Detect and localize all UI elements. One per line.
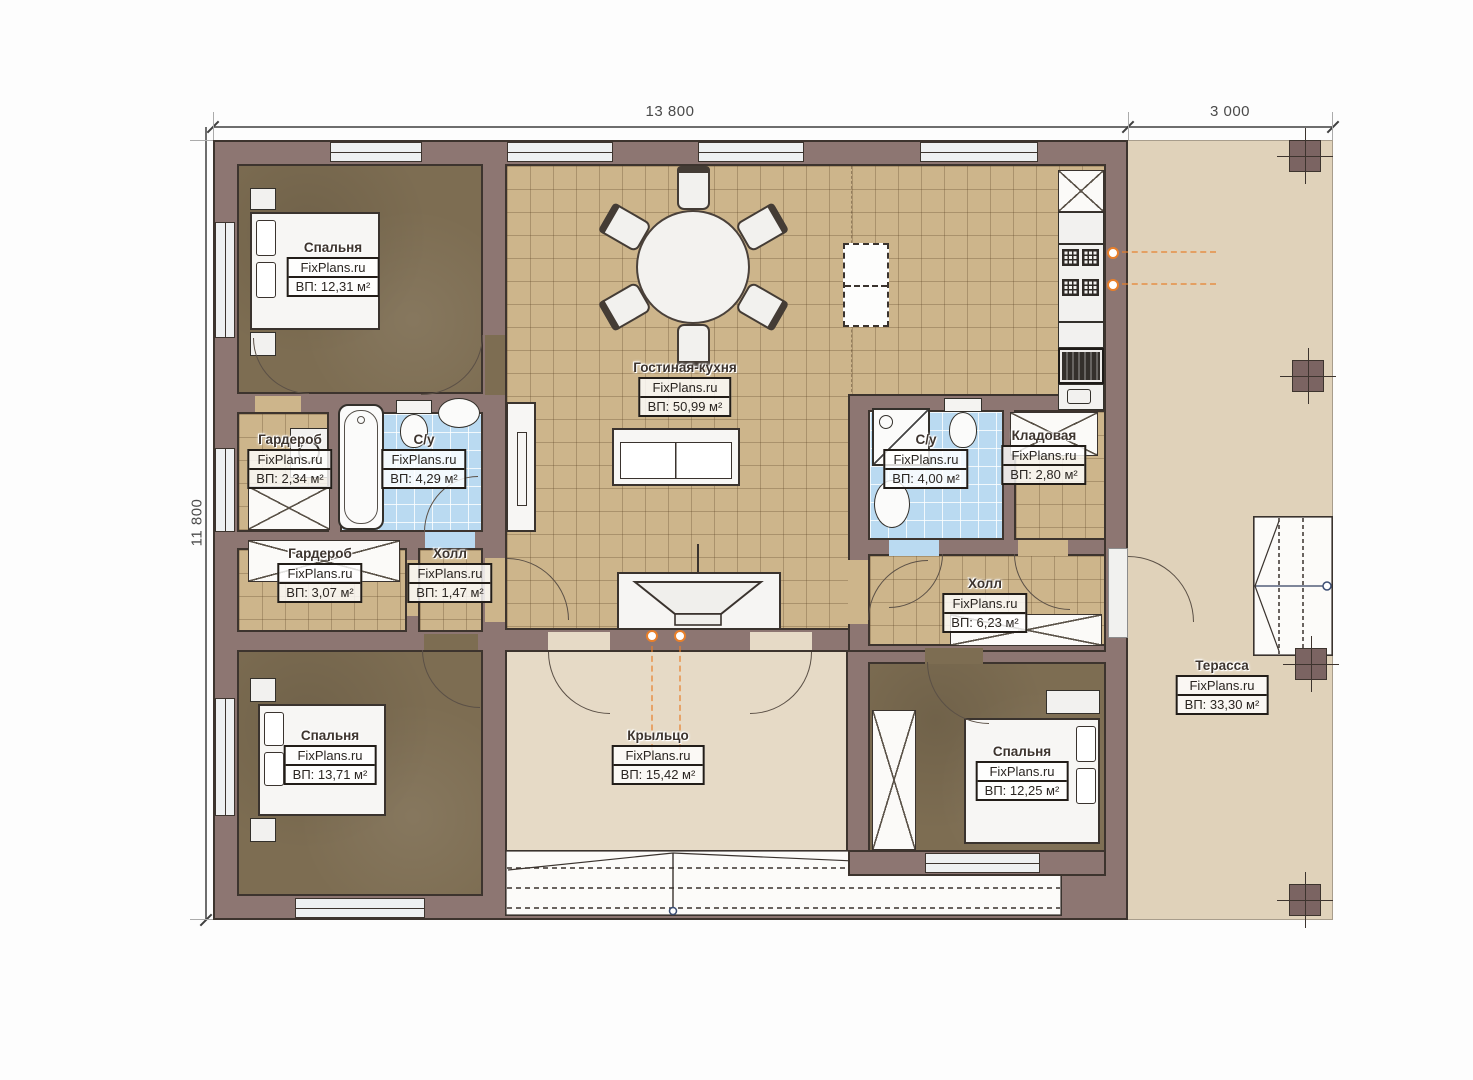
room-label-porch: Крыльцо FixPlans.ruВП: 15,42 м² — [612, 728, 705, 785]
column — [1289, 884, 1321, 916]
socket-lead-line — [1122, 283, 1216, 285]
window — [215, 698, 235, 816]
brand-watermark: FixPlans.ru — [289, 259, 378, 278]
brand-watermark: FixPlans.ru — [944, 595, 1025, 614]
window — [330, 142, 422, 162]
room-name: Холл — [942, 576, 1027, 591]
room-name: С/у — [883, 432, 968, 447]
room-name: Гардероб — [247, 432, 332, 447]
extension-line — [213, 112, 214, 140]
room-name: Холл — [407, 546, 492, 561]
room-label-living-kitchen: Гостиная-кухня FixPlans.ruВП: 50,99 м² — [633, 360, 736, 417]
dimension-text-height: 11 800 — [189, 478, 206, 568]
door-opening — [255, 396, 301, 412]
brand-watermark: FixPlans.ru — [641, 379, 730, 398]
dining-table — [636, 210, 750, 324]
room-area: ВП: 2,80 м² — [1003, 466, 1084, 483]
room-label-bedroom-3: Спальня FixPlans.ruВП: 12,25 м² — [976, 744, 1069, 801]
room-area: ВП: 3,07 м² — [279, 584, 360, 601]
nightstand — [250, 818, 276, 842]
room-name: С/у — [381, 432, 466, 447]
brand-watermark: FixPlans.ru — [1003, 447, 1084, 466]
room-name: Крыльцо — [612, 728, 705, 743]
stove — [1058, 244, 1104, 322]
dimension-line-top-main — [213, 126, 1128, 128]
room-label-bedroom-1: Спальня FixPlans.ruВП: 12,31 м² — [287, 240, 380, 297]
toilet-tank — [396, 400, 432, 414]
kitchen-island — [843, 243, 889, 327]
room-name: Гардероб — [277, 546, 362, 561]
room-name: Кладовая — [1001, 428, 1086, 443]
door-opening — [548, 632, 610, 650]
socket-lead-line — [1122, 251, 1216, 253]
brand-watermark: FixPlans.ru — [279, 565, 360, 584]
brand-watermark: FixPlans.ru — [614, 747, 703, 766]
dining-set — [636, 210, 750, 324]
room-area: ВП: 13,71 м² — [286, 766, 375, 783]
brand-watermark: FixPlans.ru — [885, 451, 966, 470]
kitchen-sink-2 — [1058, 384, 1104, 410]
door-opening — [750, 632, 812, 650]
socket-icon — [1107, 279, 1119, 291]
room-name: Спальня — [976, 744, 1069, 759]
terrace-door-opening — [1108, 548, 1128, 638]
room-area: ВП: 12,31 м² — [289, 278, 378, 295]
terrace-stairs — [1253, 516, 1333, 656]
socket-icon — [1107, 247, 1119, 259]
pillow — [1076, 768, 1096, 804]
door-opening — [848, 560, 868, 624]
dimension-text-width-main: 13 800 — [600, 103, 740, 120]
room-label-wardrobe-2: Гардероб FixPlans.ruВП: 3,07 м² — [277, 546, 362, 603]
window — [215, 222, 235, 338]
room-area: ВП: 2,34 м² — [249, 470, 330, 487]
window — [698, 142, 804, 162]
room-area: ВП: 6,23 м² — [944, 614, 1025, 631]
room-name: Спальня — [287, 240, 380, 255]
room-area: ВП: 4,00 м² — [885, 470, 966, 487]
window — [925, 853, 1040, 873]
extension-line — [1332, 112, 1333, 140]
pillow — [264, 712, 284, 746]
dimension-line-top-terrace — [1128, 126, 1333, 128]
column — [1292, 360, 1324, 392]
brand-watermark: FixPlans.ru — [978, 763, 1067, 782]
closet — [248, 486, 330, 530]
window — [507, 142, 613, 162]
door-opening — [485, 335, 505, 395]
column — [1295, 648, 1327, 680]
toilet-tank — [944, 398, 982, 412]
window — [920, 142, 1038, 162]
window — [215, 448, 235, 532]
kitchen-counter — [1058, 322, 1104, 348]
room-label-bathroom-2: С/у FixPlans.ruВП: 4,00 м² — [883, 432, 968, 489]
chair — [677, 166, 710, 210]
pillow — [1076, 726, 1096, 762]
dimension-text-width-terrace: 3 000 — [1165, 103, 1295, 120]
sink — [438, 398, 480, 428]
column — [1289, 140, 1321, 172]
room-label-terrace: Терасса FixPlans.ruВП: 33,30 м² — [1176, 658, 1269, 715]
room-label-hall-1: Холл FixPlans.ruВП: 1,47 м² — [407, 546, 492, 603]
pillow — [256, 220, 276, 256]
room-name: Терасса — [1176, 658, 1269, 673]
closet — [872, 710, 916, 850]
brand-watermark: FixPlans.ru — [409, 565, 490, 584]
room-area: ВП: 33,30 м² — [1178, 696, 1267, 713]
room-label-hall-2: Холл FixPlans.ruВП: 6,23 м² — [942, 576, 1027, 633]
room-label-bathroom-1: С/у FixPlans.ruВП: 4,29 м² — [381, 432, 466, 489]
fireplace — [617, 572, 781, 630]
brand-watermark: FixPlans.ru — [383, 451, 464, 470]
fridge — [1058, 348, 1104, 384]
kitchen-sink-unit — [1058, 170, 1104, 212]
room-label-bedroom-2: Спальня FixPlans.ruВП: 13,71 м² — [284, 728, 377, 785]
socket-icon — [674, 630, 686, 642]
floor-plan-canvas: 13 800 3 000 11 800 — [0, 0, 1473, 1080]
brand-watermark: FixPlans.ru — [286, 747, 375, 766]
tv-cabinet — [506, 402, 536, 532]
pillow — [264, 752, 284, 786]
extension-line — [1128, 112, 1129, 140]
nightstand — [250, 188, 276, 210]
nightstand — [250, 678, 276, 702]
window — [295, 898, 425, 918]
room-label-wardrobe-1: Гардероб FixPlans.ruВП: 2,34 м² — [247, 432, 332, 489]
room-area: ВП: 12,25 м² — [978, 782, 1067, 799]
kitchen-counter — [1058, 212, 1104, 244]
pillow — [256, 262, 276, 298]
brand-watermark: FixPlans.ru — [1178, 677, 1267, 696]
door-opening — [424, 634, 478, 650]
room-name: Спальня — [284, 728, 377, 743]
bathtub — [338, 404, 384, 530]
room-label-storage: Кладовая FixPlans.ruВП: 2,80 м² — [1001, 428, 1086, 485]
room-name: Гостиная-кухня — [633, 360, 736, 375]
sofa — [612, 428, 740, 486]
room-area: ВП: 15,42 м² — [614, 766, 703, 783]
chimney-line — [697, 544, 699, 572]
socket-icon — [646, 630, 658, 642]
room-area: ВП: 50,99 м² — [641, 398, 730, 415]
brand-watermark: FixPlans.ru — [249, 451, 330, 470]
room-area: ВП: 1,47 м² — [409, 584, 490, 601]
room-area: ВП: 4,29 м² — [383, 470, 464, 487]
nightstand — [1046, 690, 1100, 714]
